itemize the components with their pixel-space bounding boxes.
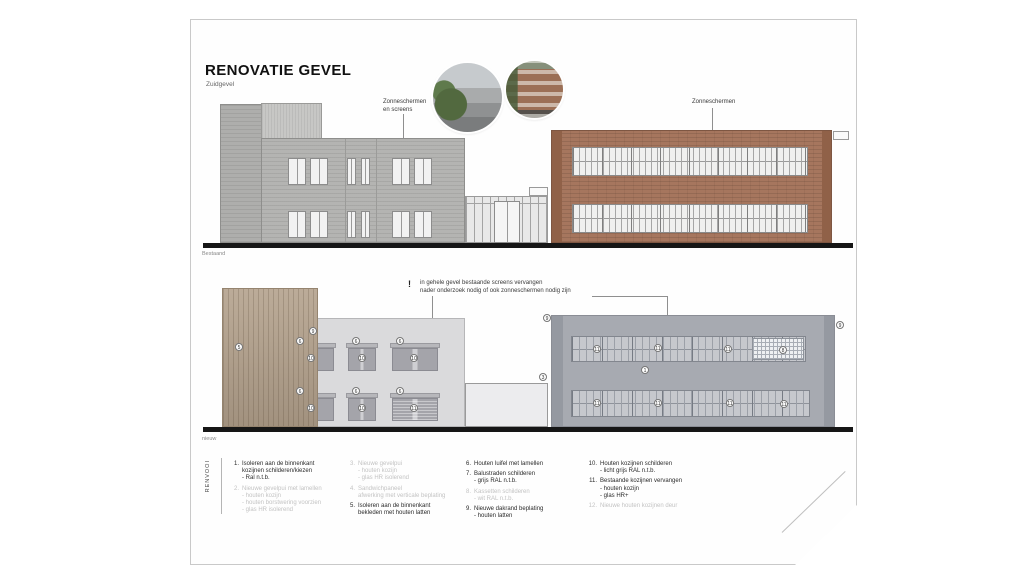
window — [310, 158, 328, 185]
legend-item-marker: 11 — [410, 404, 418, 412]
window — [288, 211, 306, 238]
legend-item-text: Bestaande kozijnen vervangen - houten ko… — [600, 478, 682, 500]
window — [414, 158, 432, 185]
window-band-upper — [572, 147, 808, 176]
caption-new: nieuw — [202, 436, 216, 442]
legend-divider — [221, 458, 222, 514]
window — [361, 158, 370, 185]
legend-item: 2.Nieuwe gevelpui met lamellen - houten … — [230, 486, 342, 515]
legend-item-number: 7. — [462, 471, 471, 485]
legend-item-text: Houten kozijnen schilderen - licht grijs… — [600, 461, 672, 475]
legend-item-number: 6. — [462, 461, 471, 468]
legend-item-marker: 11 — [724, 345, 732, 353]
legend-item-marker: 6 — [396, 337, 404, 345]
legend-item-marker: 10 — [307, 354, 315, 362]
annotation-screens-line1: Zonneschermen — [383, 99, 426, 105]
window — [392, 158, 410, 185]
legend-item-marker: 11 — [654, 399, 662, 407]
legend-item-marker: 11 — [780, 400, 788, 408]
existing-roof-block — [261, 103, 322, 139]
legend-item: 6.Houten luifel met lamellen — [462, 461, 586, 468]
legend-heading: RENVOOI — [205, 460, 211, 492]
legend-item-marker: 8 — [779, 346, 787, 354]
legend-item-text: Isoleren aan de binnenkant bekleden met … — [358, 503, 430, 517]
ground-line-existing — [203, 243, 853, 248]
legend-item-text: Kassetten schilderen - wit RAL n.t.b. — [474, 489, 530, 503]
legend-item-number: 3. — [346, 461, 355, 483]
note-line1: in gehele gevel bestaande screens vervan… — [420, 280, 542, 286]
legend-item-marker: 6 — [296, 337, 304, 345]
legend-item-marker: 11 — [654, 344, 662, 352]
window-band-lower — [572, 204, 808, 233]
legend-item-number: 10. — [588, 461, 597, 475]
new-window-band-lower — [571, 390, 810, 417]
new-pier-right — [824, 316, 834, 426]
reference-photo-grey-building — [433, 63, 502, 132]
legend-item-text: Nieuwe houten kozijnen deur — [600, 503, 677, 510]
window — [347, 158, 356, 185]
legend-item-number: 2. — [230, 486, 239, 515]
brick-pier-left — [552, 131, 562, 242]
legend-item-number: 12. — [588, 503, 597, 510]
legend-item-text: Houten luifel met lamellen — [474, 461, 543, 468]
ground-line-new — [203, 427, 853, 432]
legend-item-text: Nieuwe dakrand beplating - houten latten — [474, 506, 543, 520]
legend-item-marker: 10 — [358, 354, 366, 362]
caption-existing: Bestaand — [202, 251, 225, 257]
legend-item-marker: 6 — [352, 387, 360, 395]
window — [361, 211, 370, 238]
new-pier-left — [552, 316, 563, 426]
leader-line — [592, 296, 668, 297]
new-wood-clad-tower — [222, 288, 318, 427]
brick-pier-right — [822, 131, 831, 242]
legend-item-marker: 10 — [410, 354, 418, 362]
louvre-panel — [752, 338, 804, 360]
legend-item-marker: 9 — [309, 327, 317, 335]
legend-item-marker: 10 — [307, 404, 315, 412]
legend-item-marker: 5 — [235, 343, 243, 351]
legend-item: 9.Nieuwe dakrand beplating - houten latt… — [462, 506, 586, 520]
annotation-zonneschermen: Zonneschermen — [692, 99, 735, 107]
legend-item: 3.Nieuwe gevelpui - houten kozijn - glas… — [346, 461, 462, 483]
legend-item-marker: 11 — [593, 345, 601, 353]
window — [414, 211, 432, 238]
window — [288, 158, 306, 185]
legend-column-3: 6.Houten luifel met lamellen7.Balustrade… — [462, 461, 586, 523]
page-title: RENOVATIE GEVEL — [205, 62, 351, 79]
legend-column-4: 10.Houten kozijnen schilderen - licht gr… — [588, 461, 733, 513]
annotation-zonneschermen-text: Zonneschermen — [692, 99, 735, 105]
facade-joint — [345, 139, 346, 242]
parapet-step — [529, 187, 548, 196]
annotation-screens-line2: en screens — [383, 107, 412, 113]
legend-item-number: 4. — [346, 486, 355, 500]
exclamation-icon: ! — [408, 279, 411, 289]
legend-item-text: Nieuwe gevelpui - houten kozijn - glas H… — [358, 461, 409, 483]
legend-item-marker: 6 — [352, 337, 360, 345]
legend-item-marker: 1 — [641, 366, 649, 374]
entrance-door — [494, 201, 520, 243]
legend-item-text: Isoleren aan de binnenkant kozijnen schi… — [242, 461, 314, 483]
existing-grey-tower — [220, 104, 262, 243]
legend-item-marker: 6 — [396, 387, 404, 395]
legend-item: 7.Balustraden schilderen - grijs RAL n.t… — [462, 471, 586, 485]
legend-item-number: 11. — [588, 478, 597, 500]
roof-tab — [833, 131, 849, 140]
new-glazed-connector — [465, 383, 548, 427]
window — [392, 211, 410, 238]
page-subtitle: Zuidgevel — [206, 81, 234, 88]
legend-item-number: 8. — [462, 489, 471, 503]
legend-item: 8.Kassetten schilderen - wit RAL n.t.b. — [462, 489, 586, 503]
legend-item: 1.Isoleren aan de binnenkant kozijnen sc… — [230, 461, 342, 483]
legend-item: 4.Sandwichpaneel afwerking met verticale… — [346, 486, 462, 500]
legend-item-marker: 11 — [726, 399, 734, 407]
legend-column-2: 3.Nieuwe gevelpui - houten kozijn - glas… — [346, 461, 462, 520]
legend-item-marker: 11 — [593, 399, 601, 407]
legend-item: 10.Houten kozijnen schilderen - licht gr… — [588, 461, 733, 475]
window — [310, 211, 328, 238]
legend-item-marker: 9 — [543, 314, 551, 322]
legend-item: 11.Bestaande kozijnen vervangen - houten… — [588, 478, 733, 500]
legend-item-marker: 9 — [836, 321, 844, 329]
facade-joint — [376, 139, 377, 242]
drawing-page: RENOVATIE GEVEL Zuidgevel Zonneschermen … — [0, 0, 1030, 578]
legend-item-number: 1. — [230, 461, 239, 483]
reference-photo-brick-building — [506, 61, 563, 118]
annotation-screens-existing: Zonneschermen en screens — [383, 99, 426, 114]
note-screens-replace: in gehele gevel bestaande screens vervan… — [420, 280, 571, 295]
legend-item-marker: 3 — [539, 373, 547, 381]
legend-item: 5.Isoleren aan de binnenkant bekleden me… — [346, 503, 462, 517]
legend-item-marker: 6 — [296, 387, 304, 395]
legend-column-1: 1.Isoleren aan de binnenkant kozijnen sc… — [230, 461, 342, 517]
legend-item-marker: 10 — [358, 404, 366, 412]
legend-item-text: Nieuwe gevelpui met lamellen - houten ko… — [242, 486, 322, 515]
legend-item-text: Sandwichpaneel afwerking met verticale b… — [358, 486, 445, 500]
window — [347, 211, 356, 238]
legend-item-text: Balustraden schilderen - grijs RAL n.t.b… — [474, 471, 535, 485]
legend-item-number: 9. — [462, 506, 471, 520]
legend-item-number: 5. — [346, 503, 355, 517]
leader-line — [432, 296, 433, 318]
note-line2: nader onderzoek nodig of ook zonnescherm… — [420, 288, 571, 294]
legend-item: 12.Nieuwe houten kozijnen deur — [588, 503, 733, 510]
